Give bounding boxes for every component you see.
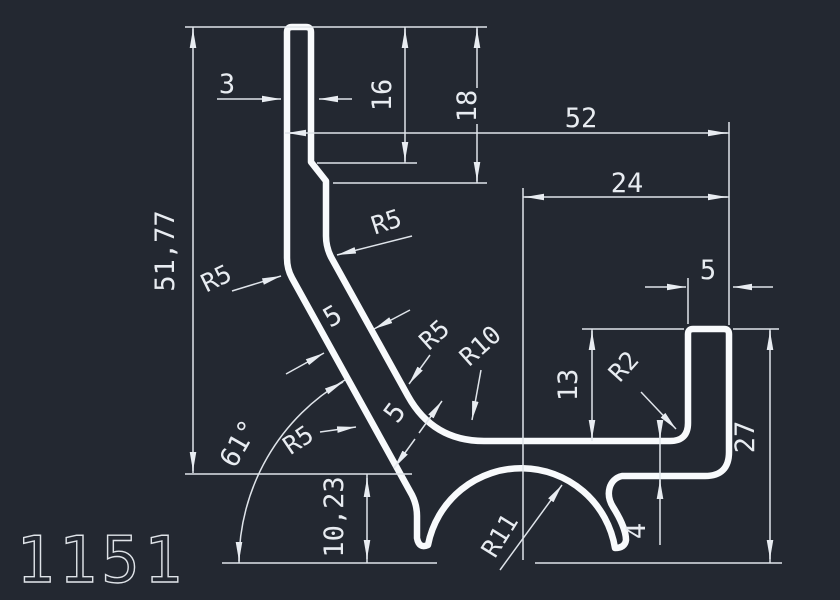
dim-label-27: 27 <box>730 421 761 454</box>
dim-label-13: 13 <box>553 369 584 402</box>
dim-label-24: 24 <box>611 168 644 199</box>
profile-number: 1151 <box>16 524 186 598</box>
dim-label-51-77: 51,77 <box>150 210 181 291</box>
dim-label-4: 4 <box>621 523 652 539</box>
dim-label-52: 52 <box>565 103 598 134</box>
cad-drawing-canvas: 3 52 24 5 16 18 13 27 4 51,77 10,23 61° … <box>0 0 840 600</box>
dim-label-3: 3 <box>219 69 235 100</box>
dim-label-10-23: 10,23 <box>319 476 350 557</box>
dim-label-5-wall: 5 <box>700 255 716 286</box>
cad-viewport[interactable]: 3 52 24 5 16 18 13 27 4 51,77 10,23 61° … <box>0 0 840 600</box>
dim-label-18: 18 <box>452 90 483 123</box>
dim-label-16: 16 <box>367 79 398 112</box>
drawing-background <box>0 0 840 600</box>
